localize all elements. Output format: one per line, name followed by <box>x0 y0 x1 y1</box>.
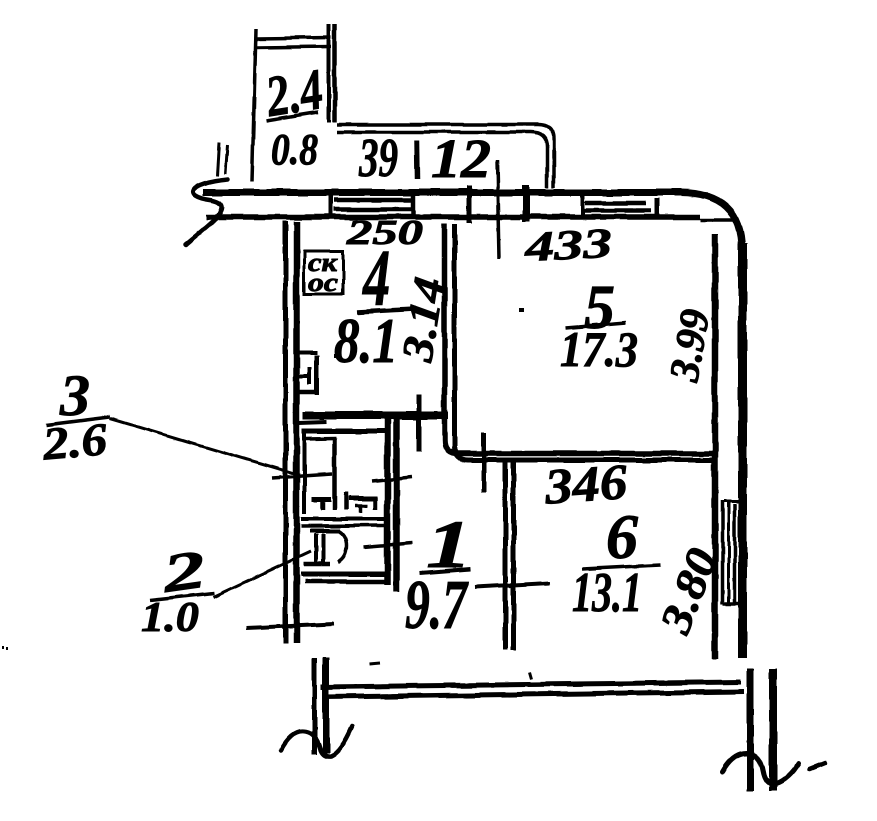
svg-text:2.6: 2.6 <box>40 413 109 469</box>
svg-text:1.0: 1.0 <box>141 595 199 641</box>
svg-text:13.1: 13.1 <box>572 562 642 624</box>
svg-text:0.8: 0.8 <box>271 125 318 174</box>
svg-text:8.1: 8.1 <box>334 305 398 376</box>
svg-text:17.3: 17.3 <box>560 321 638 377</box>
svg-text:9.7: 9.7 <box>405 567 469 644</box>
svg-text:39: 39 <box>358 127 398 188</box>
svg-text:12: 12 <box>431 128 491 189</box>
svg-text:ос: ос <box>308 268 339 297</box>
svg-text:433: 433 <box>523 221 614 272</box>
